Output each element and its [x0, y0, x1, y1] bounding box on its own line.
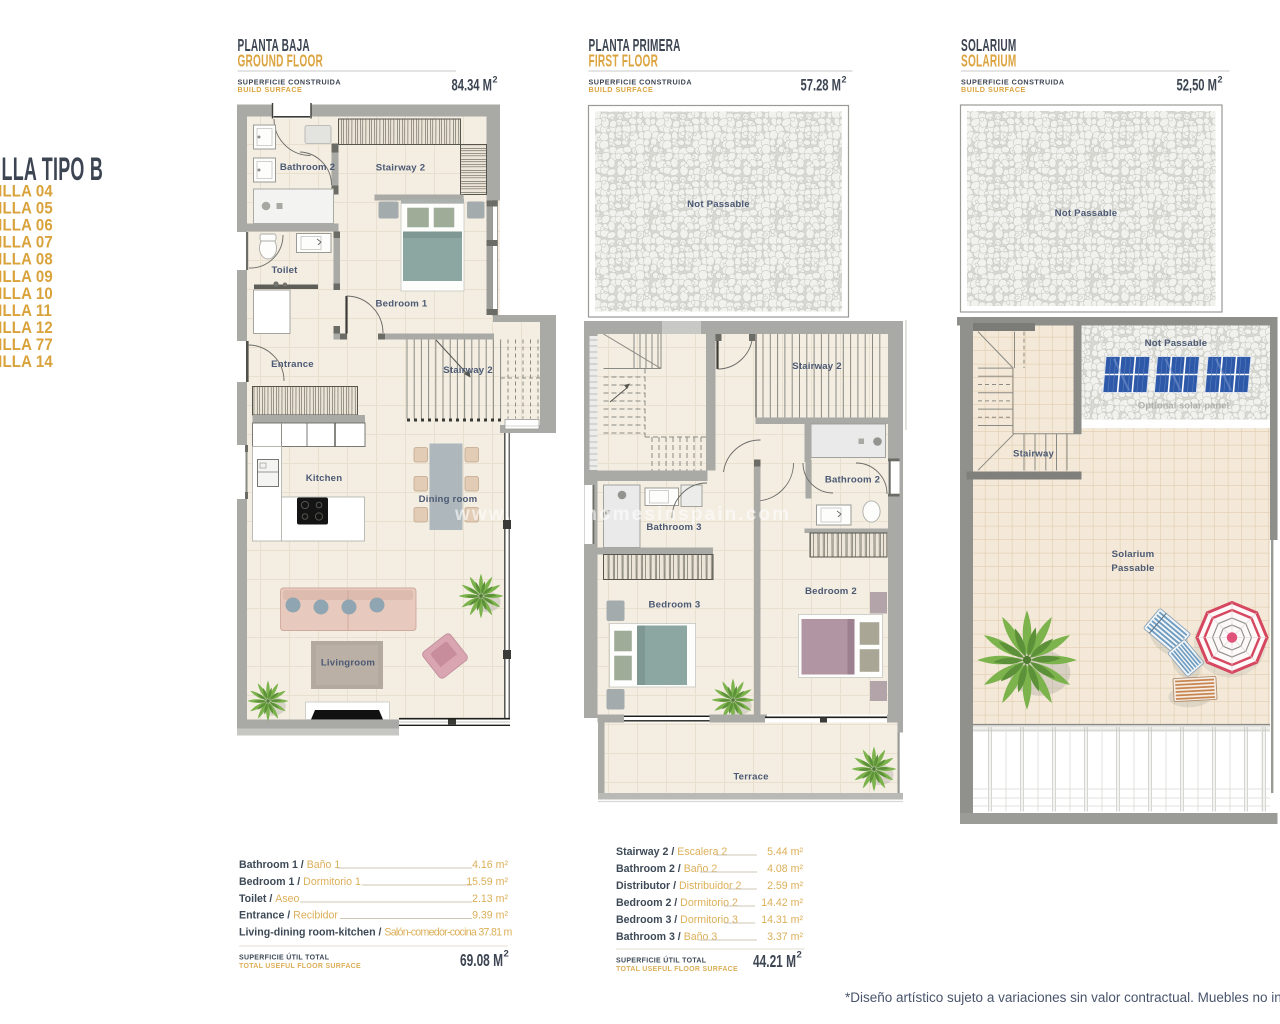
- svg-text:SUPERFICIE ÚTIL TOTAL: SUPERFICIE ÚTIL TOTAL: [239, 953, 330, 962]
- svg-text:44.21 M: 44.21 M: [753, 952, 796, 972]
- svg-text:SUPERFICIE ÚTIL TOTAL: SUPERFICIE ÚTIL TOTAL: [616, 956, 707, 965]
- svg-text:69.08 M: 69.08 M: [460, 951, 503, 971]
- svg-text:Livingroom: Livingroom: [321, 658, 375, 669]
- svg-text:Not Passable: Not Passable: [1145, 338, 1208, 349]
- svg-text:Bathroom 3 / Baño 3: Bathroom 3 / Baño 3: [616, 931, 717, 943]
- svg-text:VILLA 14: VILLA 14: [0, 353, 53, 371]
- svg-text:9.39 m²: 9.39 m²: [472, 910, 508, 922]
- svg-text:VILLA 05: VILLA 05: [0, 200, 53, 218]
- svg-text:Kitchen: Kitchen: [306, 473, 343, 484]
- svg-text:3.37 m²: 3.37 m²: [767, 931, 803, 943]
- svg-text:Bathroom 2 / Baño 2: Bathroom 2 / Baño 2: [616, 863, 717, 875]
- svg-text:Stairway 2 / Escalera 2: Stairway 2 / Escalera 2: [616, 846, 727, 858]
- svg-text:2: 2: [1218, 75, 1223, 85]
- svg-text:Bedroom 2 / Dormitorio 2: Bedroom 2 / Dormitorio 2: [616, 897, 738, 909]
- svg-text:2.59 m²: 2.59 m²: [767, 880, 803, 892]
- svg-text:Bedroom 3 / Dormitorio 3: Bedroom 3 / Dormitorio 3: [616, 914, 738, 926]
- svg-text:15.59 m²: 15.59 m²: [466, 876, 508, 888]
- svg-text:Toilet: Toilet: [271, 265, 298, 276]
- svg-text:Stairway 2: Stairway 2: [792, 361, 841, 372]
- svg-text:Entrance / Recibidor: Entrance / Recibidor: [239, 910, 338, 922]
- svg-text:Stairway: Stairway: [1013, 449, 1055, 460]
- svg-text:BUILD SURFACE: BUILD SURFACE: [238, 85, 303, 94]
- svg-text:Stairway 2: Stairway 2: [443, 365, 492, 376]
- svg-text:VILLA 77: VILLA 77: [0, 336, 53, 354]
- svg-text:Optional solar panel: Optional solar panel: [1138, 401, 1229, 412]
- svg-text:2: 2: [493, 75, 498, 85]
- svg-text:57.28 M: 57.28 M: [800, 75, 841, 94]
- svg-text:4.16 m²: 4.16 m²: [472, 859, 508, 871]
- svg-text:VILLA 12: VILLA 12: [0, 319, 53, 337]
- svg-text:Stairway 2: Stairway 2: [376, 163, 425, 174]
- svg-text:GROUND FLOOR: GROUND FLOOR: [238, 52, 324, 72]
- svg-text:TOTAL USEFUL FLOOR SURFACE: TOTAL USEFUL FLOOR SURFACE: [239, 963, 361, 970]
- svg-text:SOLARIUM: SOLARIUM: [961, 52, 1017, 72]
- svg-text:Passable: Passable: [1111, 563, 1154, 574]
- svg-text:Bedroom 3: Bedroom 3: [649, 600, 701, 611]
- svg-text:Living-dining room-kitchen / S: Living-dining room-kitchen / Salón-comed…: [239, 927, 513, 939]
- svg-text:BUILD SURFACE: BUILD SURFACE: [589, 85, 654, 94]
- svg-text:4.08 m²: 4.08 m²: [767, 863, 803, 875]
- svg-text:14.42 m²: 14.42 m²: [761, 897, 803, 909]
- svg-text:Entrance: Entrance: [271, 359, 314, 370]
- svg-text:Bedroom 1 / Dormitorio 1: Bedroom 1 / Dormitorio 1: [239, 876, 361, 888]
- svg-text:Distributor / Distribuidor 2: Distributor / Distribuidor 2: [616, 880, 742, 892]
- svg-text:TOTAL USEFUL FLOOR SURFACE: TOTAL USEFUL FLOOR SURFACE: [616, 966, 738, 973]
- svg-text:Bedroom 2: Bedroom 2: [805, 586, 857, 597]
- svg-text:14.31 m²: 14.31 m²: [761, 914, 803, 926]
- svg-text:2: 2: [504, 949, 509, 960]
- svg-text:Not Passable: Not Passable: [687, 199, 750, 210]
- svg-text:2: 2: [797, 950, 802, 961]
- svg-text:2: 2: [842, 75, 847, 85]
- svg-text:Toilet / Aseo: Toilet / Aseo: [239, 893, 300, 905]
- svg-text:VILLA 09: VILLA 09: [0, 268, 53, 286]
- svg-text:*Diseño artístico sujeto a var: *Diseño artístico sujeto a variaciones s…: [845, 990, 1280, 1005]
- svg-text:VILLA 08: VILLA 08: [0, 251, 53, 269]
- svg-text:VILLA 06: VILLA 06: [0, 217, 53, 235]
- svg-text:Bathroom 1 / Baño 1: Bathroom 1 / Baño 1: [239, 859, 340, 871]
- svg-text:52,50 M: 52,50 M: [1176, 75, 1217, 94]
- svg-text:FIRST FLOOR: FIRST FLOOR: [589, 52, 659, 72]
- svg-text:Bedroom 1: Bedroom 1: [376, 299, 428, 310]
- svg-text:Not Passable: Not Passable: [1055, 208, 1118, 219]
- svg-text:84.34 M: 84.34 M: [451, 75, 492, 94]
- svg-text:VILLA 07: VILLA 07: [0, 234, 53, 252]
- svg-text:www.blancahomesinspain.com: www.blancahomesinspain.com: [454, 504, 790, 525]
- svg-text:Bathroom 2: Bathroom 2: [825, 475, 880, 486]
- svg-text:VILLA 04: VILLA 04: [0, 183, 53, 201]
- svg-text:Terrace: Terrace: [733, 772, 768, 783]
- svg-text:Solarium: Solarium: [1112, 549, 1155, 560]
- svg-text:VILLA 11: VILLA 11: [0, 302, 52, 320]
- svg-text:5.44 m²: 5.44 m²: [767, 846, 803, 858]
- svg-text:VILLA 10: VILLA 10: [0, 285, 53, 303]
- svg-text:Bathroom 2: Bathroom 2: [280, 162, 335, 173]
- svg-text:BUILD SURFACE: BUILD SURFACE: [961, 85, 1026, 94]
- svg-text:2.13 m²: 2.13 m²: [472, 893, 508, 905]
